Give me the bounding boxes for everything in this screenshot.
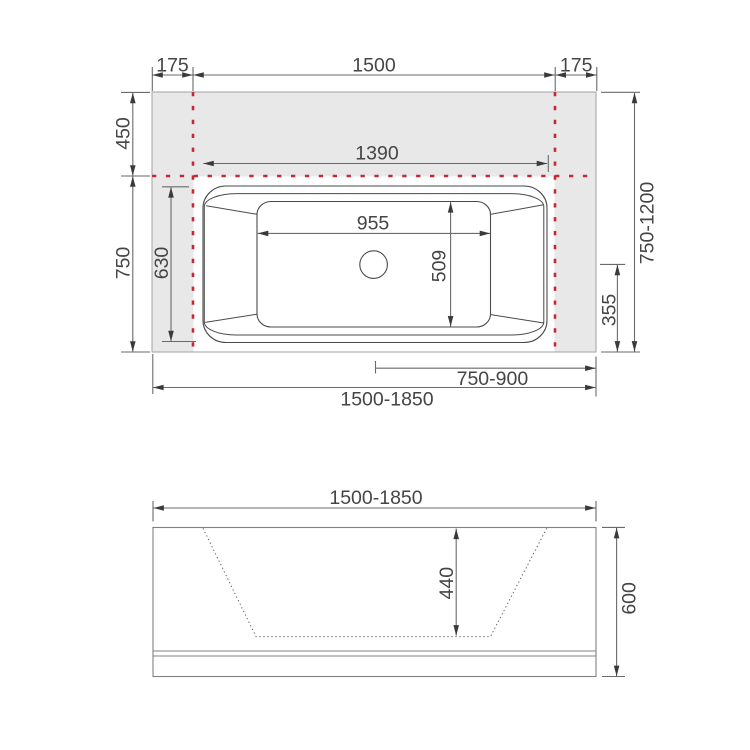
svg-text:630: 630 <box>151 247 173 280</box>
svg-text:1390: 1390 <box>355 143 399 165</box>
svg-text:450: 450 <box>113 117 135 150</box>
svg-text:1500-1850: 1500-1850 <box>329 487 422 509</box>
svg-text:175: 175 <box>560 55 593 77</box>
svg-text:509: 509 <box>429 250 451 283</box>
svg-text:355: 355 <box>598 294 620 327</box>
svg-text:600: 600 <box>619 582 641 615</box>
svg-text:175: 175 <box>156 55 189 77</box>
svg-text:1500-1850: 1500-1850 <box>340 389 433 411</box>
svg-text:750-900: 750-900 <box>457 368 529 390</box>
svg-text:750: 750 <box>113 247 135 280</box>
svg-text:955: 955 <box>357 213 390 235</box>
svg-text:1500: 1500 <box>352 55 396 77</box>
svg-text:440: 440 <box>436 567 458 600</box>
svg-text:750-1200: 750-1200 <box>636 182 658 265</box>
